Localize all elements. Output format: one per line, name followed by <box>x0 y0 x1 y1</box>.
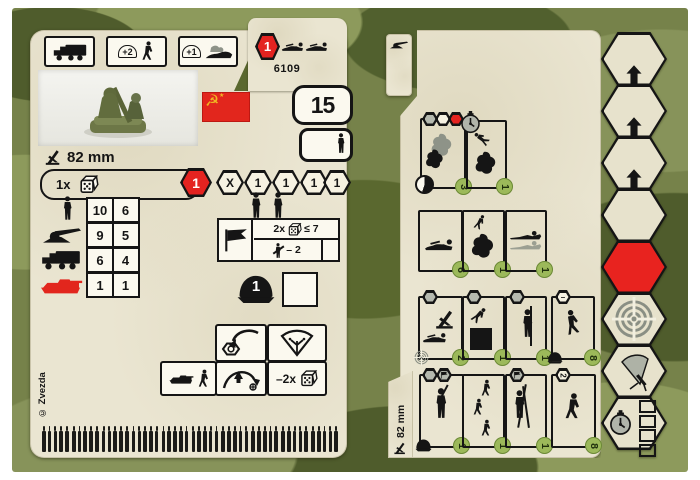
ammo-group <box>251 426 278 452</box>
caliber-tab-label: 82 mm <box>395 382 407 438</box>
marching-soldier-icon <box>472 398 484 417</box>
mortar-miniature-image <box>38 70 198 146</box>
order-prone-box: 1 <box>505 210 547 272</box>
cover-bonus-box: +2 <box>106 36 167 67</box>
order-number-badge: 1 <box>536 261 553 278</box>
caliber-tab: 82 mm <box>388 368 413 458</box>
copyright-text: © Zvezda <box>37 364 48 418</box>
firing-soldier-icon <box>140 41 155 62</box>
aim-circle-icon <box>413 349 430 366</box>
tank-icon <box>167 372 194 386</box>
fire-over-obstacle-box <box>215 361 267 396</box>
emplacement-icon <box>204 42 234 62</box>
reroll-rule: 2x ≤ 7 <box>254 220 338 240</box>
armor-value: 1 <box>236 278 276 295</box>
miniature-photo <box>38 70 198 146</box>
range-hex-3-value: 1 <box>275 173 298 193</box>
unit-class-value: 1 <box>258 36 278 58</box>
reroll-multiplier: 2x <box>273 223 285 235</box>
tank-assault-box <box>160 361 217 396</box>
mortar-icon <box>44 148 62 166</box>
track-hex-move-3 <box>601 136 667 190</box>
range-hex-0-value: 1 <box>183 171 210 195</box>
loader-figure-icon <box>468 304 490 327</box>
penalty-rule: – 2 <box>254 240 321 260</box>
mortar-mass-icon <box>468 228 496 264</box>
track-hex-blank <box>601 188 667 242</box>
helmet-icon <box>547 351 563 364</box>
empty-status-box <box>282 272 318 307</box>
infantry-far-value: 6 <box>112 197 140 223</box>
track-hex-target <box>601 292 667 346</box>
flag-cell <box>219 220 253 260</box>
observer-arc-icon <box>273 329 321 357</box>
ammo-group <box>72 426 99 452</box>
track-hex-timer <box>601 396 667 450</box>
crawling-soldier-icon <box>424 238 455 251</box>
firing-mortar-icon <box>434 308 456 330</box>
gun-near-value: 9 <box>86 222 114 248</box>
table-row: 10 6 <box>86 197 140 223</box>
spotter-soldier-icon <box>250 192 262 218</box>
star-icon: ★ <box>219 92 224 99</box>
up-arrow-icon <box>626 117 642 137</box>
dice-penalty-box: –2x <box>267 361 327 396</box>
running-soldier-icon <box>197 369 210 389</box>
flag-icon <box>513 371 521 379</box>
order-setup-box: 1 <box>462 210 505 272</box>
turn-boxes <box>639 400 656 457</box>
range-hex-1-value: X <box>219 173 242 193</box>
truck-icon <box>52 42 88 62</box>
range-hex-4-value: 1 <box>303 173 326 193</box>
track-hex-fire-arc <box>601 344 667 398</box>
helmet-icon <box>415 438 432 452</box>
spotter-ability-box: 2x ≤ 7 – 2 <box>217 218 340 262</box>
penalty-value: – 2 <box>286 244 301 256</box>
order-number-badge: 8 <box>584 349 601 366</box>
ammo-group <box>132 426 159 452</box>
ammo-group <box>192 426 219 452</box>
crawling-crew-icon <box>305 38 329 55</box>
dice-penalty-value: –2x <box>276 372 296 386</box>
caliber-heading: 82 mm <box>44 148 115 166</box>
target-icon <box>611 296 657 342</box>
ammo-group <box>281 426 308 452</box>
helmet-plus1-label: +1 <box>182 45 200 58</box>
table-row: 9 5 <box>86 222 140 248</box>
prone-shadow-icon <box>509 240 542 252</box>
tank-target-icon <box>36 276 84 295</box>
up-arrow-icon <box>626 169 642 189</box>
soviet-flag: ☭ ★ <box>202 92 250 122</box>
truck-near-value: 6 <box>86 247 114 273</box>
spotter-soldier-icon <box>272 192 284 218</box>
walking-soldier-icon <box>563 390 582 424</box>
order-rally-box: 1 <box>419 374 464 448</box>
soldier-icon <box>336 133 346 153</box>
smoke-cloud-icon <box>423 148 445 170</box>
table-row: 1 1 <box>86 272 140 298</box>
side-strip <box>386 34 412 96</box>
crossed-soldier-icon <box>274 243 282 258</box>
ammo-group <box>102 426 129 452</box>
cheering-soldier-icon <box>434 386 448 420</box>
order-number-badge: 1 <box>496 178 513 195</box>
order-march-box: 1 <box>462 374 505 448</box>
ammo-group <box>221 426 248 452</box>
ammo-group <box>42 426 69 452</box>
climbing-soldier-icon <box>559 306 584 340</box>
blast-icon <box>472 148 498 178</box>
mortar-base-icon <box>470 328 492 350</box>
observer-arc-box <box>267 324 327 362</box>
order-number-badge: 8 <box>585 437 602 454</box>
order-timed-fire-box: 1 <box>466 120 507 189</box>
empty-subcell <box>321 240 338 260</box>
up-arrow-icon <box>626 65 642 85</box>
track-hex-red <box>601 240 667 294</box>
fire-arc-icon <box>612 350 656 392</box>
order-crawl-box: 6 <box>418 210 463 272</box>
tank-near-value: 1 <box>86 272 114 298</box>
armor-helmet: 1 <box>236 273 276 304</box>
die-icon <box>78 174 99 195</box>
crew-icon <box>422 332 448 343</box>
scan-of-game-cards: +2 +1 1 6109 ☭ ★ 15 <box>0 0 700 480</box>
gun-target-icon <box>40 226 84 245</box>
points-value: 15 <box>311 92 335 119</box>
track-hex-move-1 <box>601 32 667 86</box>
table-row: 6 4 <box>86 247 140 273</box>
gun-far-value: 5 <box>112 222 140 248</box>
flag-icon <box>440 371 448 379</box>
die-icon <box>299 369 318 388</box>
tank-far-value: 1 <box>112 272 140 298</box>
order-pack-move-box: 1 <box>505 374 547 448</box>
order-fire-box: 2 <box>418 296 463 360</box>
order-walk-box: 2 8 <box>551 374 596 448</box>
die-icon <box>287 222 302 237</box>
ammo-group <box>311 426 338 452</box>
range-hex-2-value: 1 <box>247 173 270 193</box>
aiming-stake-icon <box>530 306 532 346</box>
fire-over-hex-icon <box>220 329 262 357</box>
truck-far-value: 4 <box>112 247 140 273</box>
transport-box <box>44 36 95 67</box>
crew-box <box>299 128 353 162</box>
crawling-crew-icon <box>281 38 305 55</box>
duration-pie-icon <box>415 175 434 194</box>
range-hex-5-value: 1 <box>326 173 349 193</box>
marching-soldier-icon <box>480 379 492 398</box>
track-hex-move-2 <box>601 84 667 138</box>
caliber-label: 82 mm <box>67 149 115 166</box>
thrown-figure-icon <box>471 129 493 148</box>
mortar-icon <box>393 441 407 455</box>
marching-soldier-icon <box>480 419 492 438</box>
helmet-plus2-label: +2 <box>118 45 136 58</box>
indirect-fire-box <box>215 324 267 362</box>
order-aim-box: 1 <box>505 296 547 360</box>
hammer-sickle-icon: ☭ <box>205 91 219 111</box>
set-number: 6109 <box>255 63 319 75</box>
soldier-with-stake-icon <box>521 308 534 338</box>
flag-icon <box>222 227 248 253</box>
ammo-group <box>162 426 189 452</box>
arc-over-tree-icon <box>220 366 262 392</box>
stopwatch-icon <box>609 410 632 436</box>
ammo-tally-row <box>42 426 338 452</box>
infantry-target-icon <box>62 196 73 220</box>
small-gun-icon <box>389 40 409 50</box>
order-load-box: 1 <box>462 296 505 360</box>
points-value-box: 15 <box>292 85 353 125</box>
entrench-bonus-box: +1 <box>178 36 238 67</box>
truck-target-icon <box>40 248 82 271</box>
dice-count-label: 1x <box>56 177 70 192</box>
order-retreat-box: – 8 <box>551 296 595 360</box>
reroll-threshold: ≤ 7 <box>304 223 319 235</box>
infantry-near-value: 10 <box>86 197 114 223</box>
